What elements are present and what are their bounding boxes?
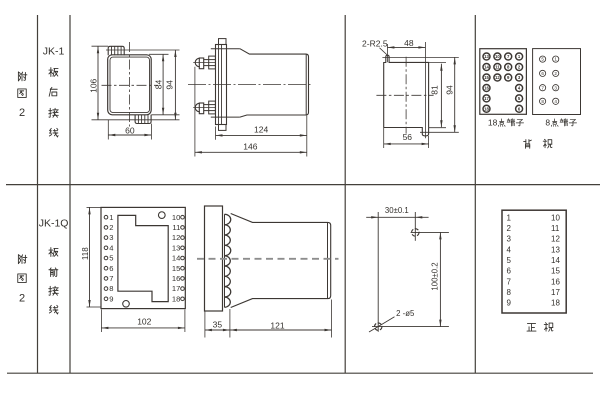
svg-text:106: 106 bbox=[88, 78, 98, 92]
svg-text:3: 3 bbox=[109, 233, 113, 242]
svg-text:2: 2 bbox=[19, 107, 25, 119]
svg-text:3: 3 bbox=[518, 75, 521, 80]
svg-text:13: 13 bbox=[551, 245, 560, 254]
svg-text:6: 6 bbox=[507, 267, 512, 276]
svg-text:15: 15 bbox=[172, 264, 180, 273]
svg-text:5: 5 bbox=[518, 96, 521, 101]
svg-text:56: 56 bbox=[403, 132, 413, 142]
svg-text:16: 16 bbox=[172, 274, 180, 283]
svg-text:2: 2 bbox=[507, 224, 512, 233]
svg-text:6: 6 bbox=[518, 106, 521, 111]
svg-text:2: 2 bbox=[19, 292, 25, 304]
svg-text:JK-1Q: JK-1Q bbox=[39, 218, 69, 230]
svg-text:10: 10 bbox=[495, 54, 500, 59]
svg-text:14: 14 bbox=[484, 65, 489, 70]
svg-text:17: 17 bbox=[551, 288, 560, 297]
svg-text:4: 4 bbox=[554, 99, 557, 104]
svg-text:12: 12 bbox=[551, 235, 560, 244]
svg-text:12: 12 bbox=[172, 233, 180, 242]
svg-text:7: 7 bbox=[541, 85, 544, 90]
svg-text:1: 1 bbox=[518, 54, 521, 59]
svg-text:4: 4 bbox=[109, 243, 113, 252]
svg-text:8: 8 bbox=[541, 99, 544, 104]
svg-text:30±0.1: 30±0.1 bbox=[385, 206, 409, 215]
svg-text:11: 11 bbox=[495, 65, 500, 70]
svg-text:121: 121 bbox=[270, 321, 284, 331]
svg-text:4: 4 bbox=[507, 245, 512, 254]
svg-text:124: 124 bbox=[254, 124, 268, 134]
svg-text:17: 17 bbox=[172, 284, 180, 293]
svg-text:10: 10 bbox=[172, 213, 180, 222]
svg-text:1: 1 bbox=[507, 213, 512, 222]
svg-text:13: 13 bbox=[484, 54, 489, 59]
svg-text:60: 60 bbox=[125, 125, 135, 135]
svg-text:5: 5 bbox=[541, 57, 544, 62]
svg-text:7: 7 bbox=[109, 274, 113, 283]
svg-text:7: 7 bbox=[507, 277, 512, 286]
svg-text:15: 15 bbox=[551, 267, 560, 276]
svg-text:48: 48 bbox=[404, 38, 414, 48]
svg-text:118: 118 bbox=[81, 247, 90, 260]
svg-text:84: 84 bbox=[153, 80, 163, 90]
svg-text:18: 18 bbox=[488, 117, 498, 127]
svg-text:11: 11 bbox=[172, 223, 180, 232]
svg-text:18: 18 bbox=[551, 299, 560, 308]
svg-text:2-R2.5: 2-R2.5 bbox=[362, 38, 388, 48]
svg-text:11: 11 bbox=[551, 224, 560, 233]
svg-text:14: 14 bbox=[551, 256, 560, 265]
svg-text:6: 6 bbox=[541, 71, 544, 76]
svg-text:2 -ø5: 2 -ø5 bbox=[396, 309, 415, 318]
svg-text:94: 94 bbox=[164, 80, 174, 90]
svg-text:16: 16 bbox=[484, 86, 489, 91]
svg-text:16: 16 bbox=[551, 277, 560, 286]
svg-text:8: 8 bbox=[545, 117, 550, 127]
svg-text:12: 12 bbox=[495, 75, 500, 80]
svg-text:8: 8 bbox=[507, 288, 512, 297]
svg-text:81: 81 bbox=[429, 85, 439, 95]
svg-text:9: 9 bbox=[507, 299, 512, 308]
svg-text:10: 10 bbox=[551, 213, 560, 222]
svg-text:18: 18 bbox=[172, 294, 180, 303]
svg-text:5: 5 bbox=[109, 254, 113, 263]
svg-text:8: 8 bbox=[507, 65, 510, 70]
svg-text:JK-1: JK-1 bbox=[43, 46, 65, 58]
svg-text:3: 3 bbox=[507, 235, 512, 244]
svg-text:2: 2 bbox=[109, 223, 113, 232]
svg-text:94: 94 bbox=[445, 85, 455, 95]
svg-text:7: 7 bbox=[507, 54, 510, 59]
svg-text:2: 2 bbox=[518, 65, 521, 70]
svg-text:2: 2 bbox=[554, 71, 557, 76]
svg-text:18: 18 bbox=[484, 106, 489, 111]
svg-text:5: 5 bbox=[507, 256, 512, 265]
svg-text:3: 3 bbox=[554, 85, 557, 90]
svg-text:9: 9 bbox=[109, 294, 113, 303]
svg-text:102: 102 bbox=[137, 316, 151, 326]
svg-text:13: 13 bbox=[172, 243, 180, 252]
svg-text:35: 35 bbox=[213, 320, 223, 330]
svg-text:1: 1 bbox=[554, 57, 557, 62]
svg-text:15: 15 bbox=[484, 75, 489, 80]
svg-text:146: 146 bbox=[243, 141, 257, 151]
svg-text:8: 8 bbox=[109, 284, 113, 293]
svg-text:9: 9 bbox=[507, 75, 510, 80]
svg-text:100±0.2: 100±0.2 bbox=[431, 262, 440, 290]
svg-text:4: 4 bbox=[518, 86, 521, 91]
svg-text:14: 14 bbox=[172, 254, 180, 263]
svg-text:1: 1 bbox=[109, 213, 113, 222]
svg-text:6: 6 bbox=[109, 264, 113, 273]
svg-text:17: 17 bbox=[484, 96, 489, 101]
